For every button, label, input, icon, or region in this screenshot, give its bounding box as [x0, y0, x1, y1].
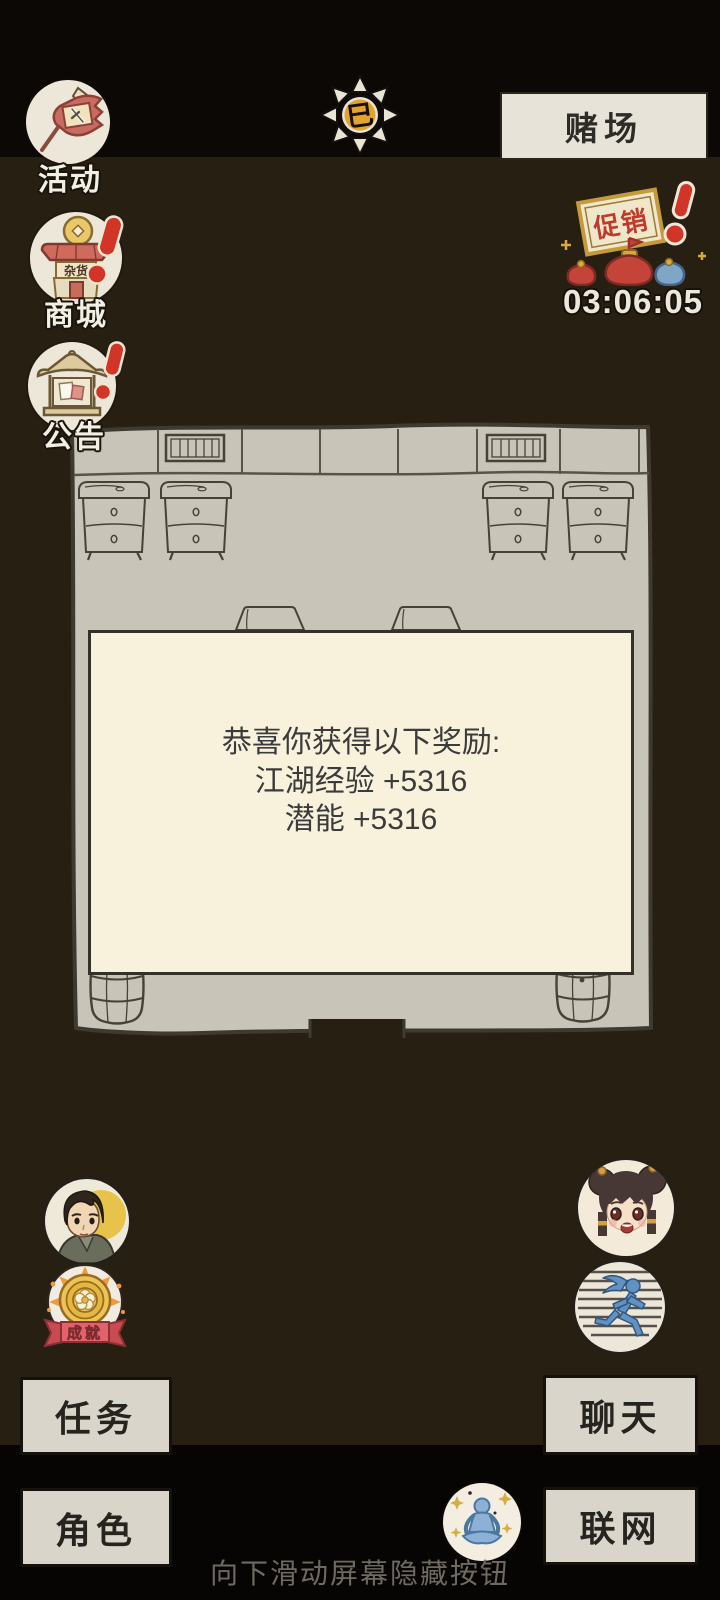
reward-dialog-title: 恭喜你获得以下奖励: [91, 723, 631, 763]
achievement-label: 成就 [67, 1324, 103, 1342]
promo-countdown-timer: 03:06:05 [552, 283, 714, 321]
shop-sign-text: 杂货 [64, 263, 88, 278]
time-of-day-sun-icon: 巳 [318, 73, 402, 157]
notice-alert-badge-icon [94, 340, 138, 402]
network-button-label: 联网 [579, 1500, 661, 1552]
runner-icon [575, 1262, 665, 1352]
player-avatar-button[interactable] [45, 1179, 129, 1263]
promo-sale-icon: 促销 [552, 180, 712, 286]
shop-alert-badge-icon [86, 214, 138, 286]
promo-sale-button[interactable]: 促销 [552, 180, 712, 286]
notice-label: 公告 [14, 412, 134, 456]
character-button-label: 角色 [55, 1502, 137, 1554]
shop-label: 商城 [16, 290, 136, 334]
reward-line-experience: 江湖经验 +5316 [91, 763, 631, 801]
achievement-medal-icon: 成就 [39, 1262, 131, 1350]
companion-avatar-button[interactable] [578, 1160, 674, 1256]
time-glyph: 巳 [345, 99, 376, 132]
activity-button[interactable] [26, 80, 110, 164]
female-avatar-icon [578, 1160, 674, 1256]
chat-button-label: 聊天 [579, 1389, 661, 1441]
meditate-button[interactable] [443, 1483, 521, 1561]
reward-line-potential: 潜能 +5316 [91, 801, 631, 839]
tasks-button-label: 任务 [55, 1390, 137, 1442]
game-screen: 恭喜你获得以下奖励: 江湖经验 +5316 潜能 +5316 活动 杂货 [0, 0, 720, 1600]
achievement-button[interactable]: 成就 [39, 1262, 131, 1350]
meditation-icon [443, 1483, 521, 1561]
chat-button[interactable]: 聊天 [543, 1375, 698, 1455]
casino-button[interactable]: 赌场 [500, 92, 708, 160]
casino-button-label: 赌场 [565, 102, 643, 150]
activity-label: 活动 [10, 155, 130, 199]
male-avatar-icon [45, 1179, 129, 1263]
swipe-hint-text: 向下滑动屏幕隐藏按钮 [0, 1552, 720, 1592]
auto-run-button[interactable] [575, 1262, 665, 1352]
tasks-button[interactable]: 任务 [20, 1377, 172, 1455]
activity-flag-icon [26, 80, 110, 164]
reward-dialog[interactable]: 恭喜你获得以下奖励: 江湖经验 +5316 潜能 +5316 [88, 630, 634, 975]
